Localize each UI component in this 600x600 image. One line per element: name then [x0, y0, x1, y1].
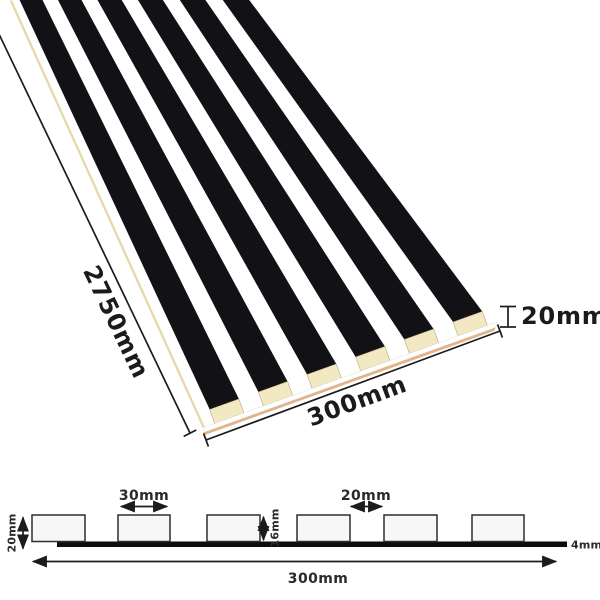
slat-height-label: 16mm: [269, 508, 282, 547]
section-slat: [32, 515, 85, 542]
backing-strip: [57, 542, 567, 548]
backing-thickness-label: 4mm: [571, 539, 600, 552]
total-width-label: 300mm: [288, 571, 348, 587]
section-slat: [118, 515, 170, 542]
panel-thickness-label: 20mm: [521, 302, 600, 330]
panel-3d-view: [11, 0, 497, 436]
section-slat: [297, 515, 350, 542]
section-slat: [207, 515, 260, 542]
cross-section-view: 20mm 30mm 20mm 16mm 4mm 300mm: [6, 488, 600, 587]
thickness-marker: [500, 307, 516, 328]
product-dimension-image: 2750mm 300mm 20mm 20mm 30m: [0, 0, 600, 600]
total-height-label: 20mm: [6, 513, 19, 552]
length-dimension-tick: [184, 430, 197, 436]
section-slat: [472, 515, 524, 542]
gap-label: 20mm: [341, 488, 391, 504]
diagram-canvas: 2750mm 300mm 20mm 20mm 30m: [0, 0, 600, 600]
section-slat: [384, 515, 437, 542]
slat-width-label: 30mm: [119, 488, 169, 504]
